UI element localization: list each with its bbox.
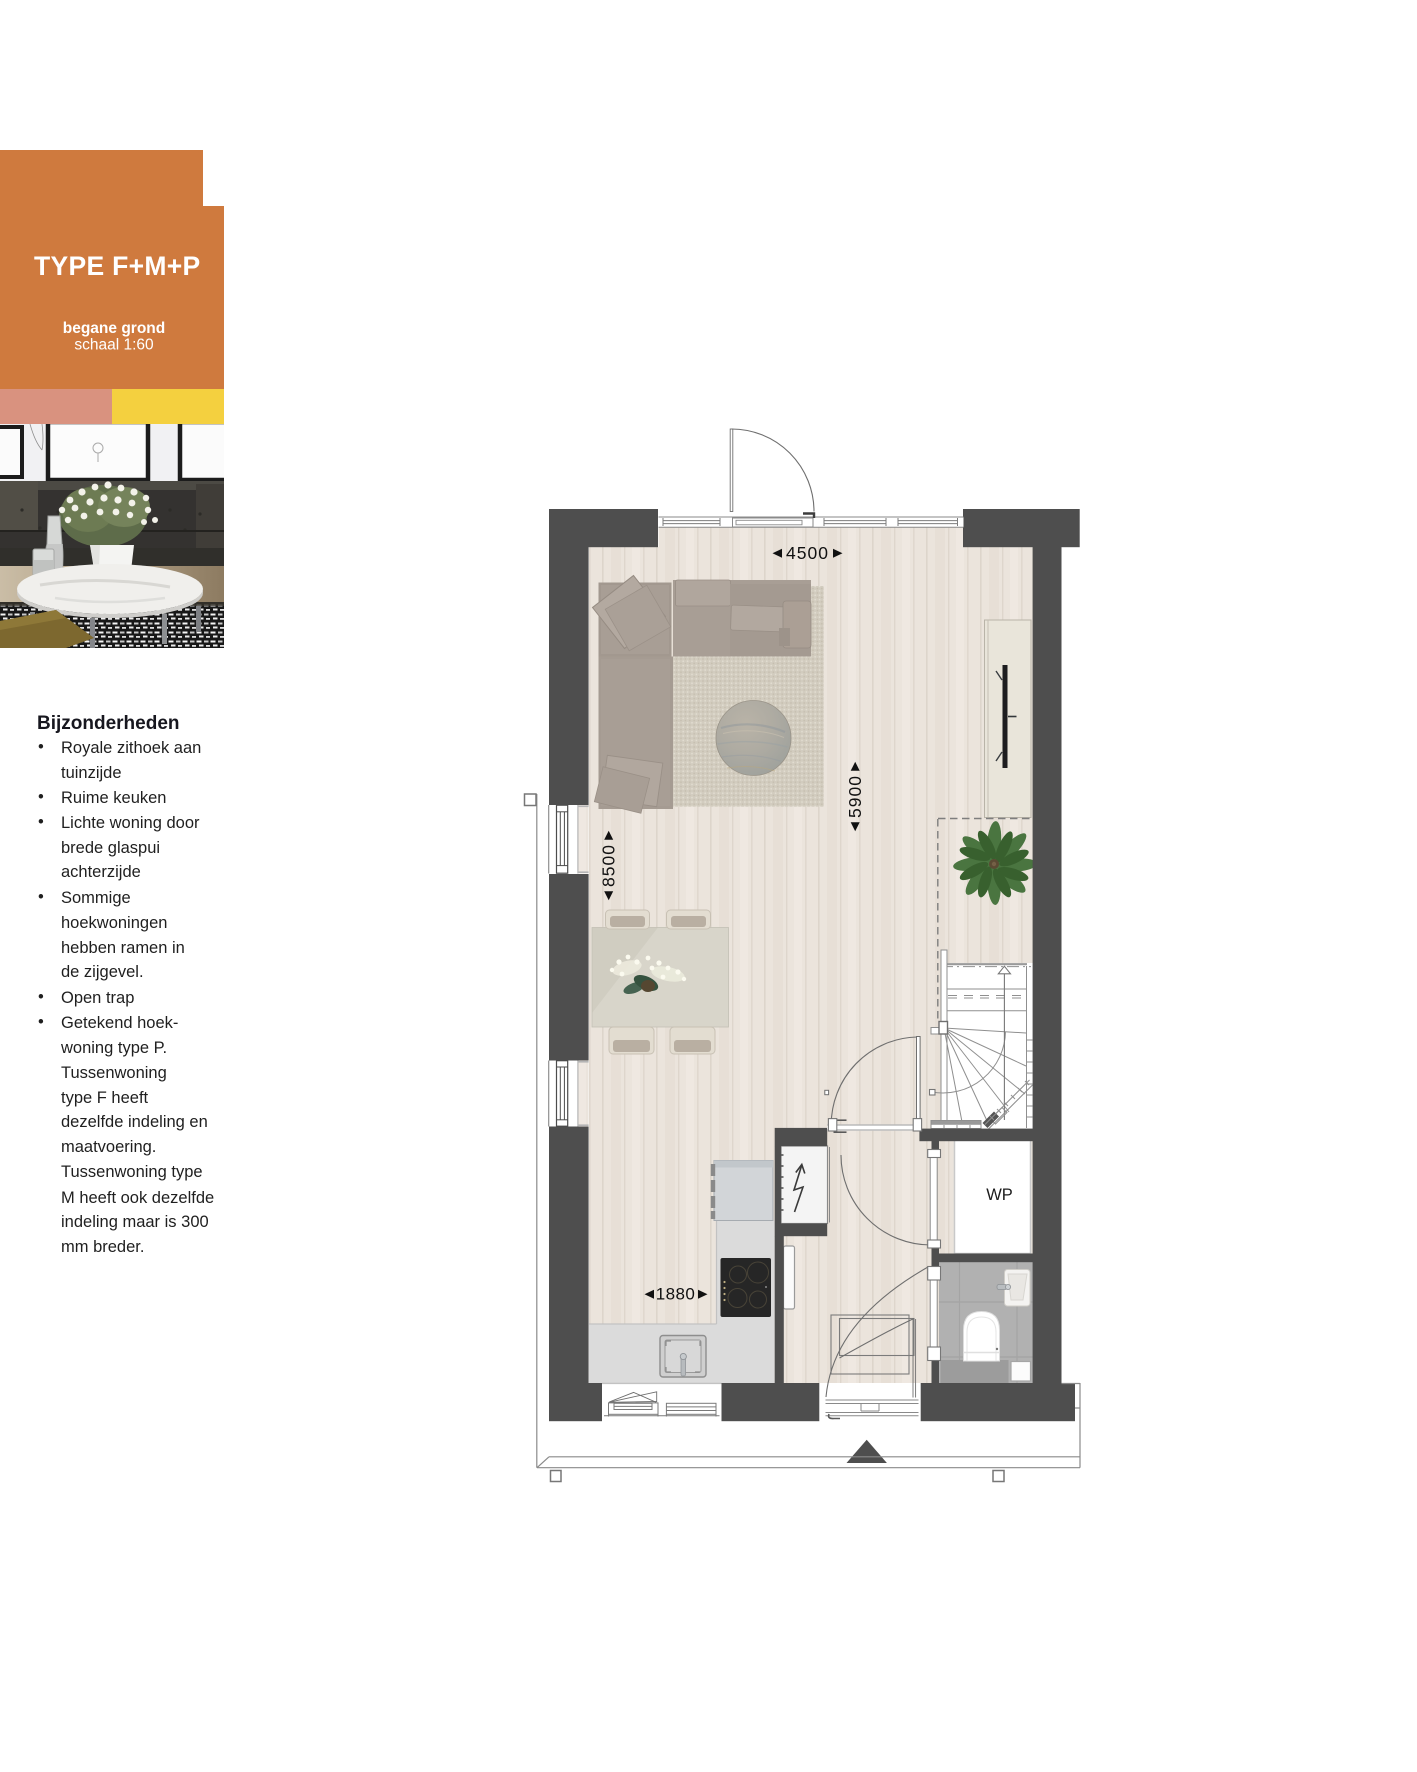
svg-text:•: • (38, 988, 44, 1006)
svg-text:Open trap: Open trap (61, 989, 134, 1007)
svg-text:maatvoering.: maatvoering. (61, 1138, 156, 1156)
svg-text:tuinzijde: tuinzijde (61, 764, 122, 782)
svg-text:Ruime keuken: Ruime keuken (61, 789, 166, 807)
svg-text:TYPE F+M+P: TYPE F+M+P (34, 251, 200, 281)
svg-text:WP: WP (986, 1186, 1013, 1204)
svg-text:8500: 8500 (599, 844, 619, 887)
svg-text:brede glaspui: brede glaspui (61, 839, 160, 857)
svg-text:Lichte woning door: Lichte woning door (61, 814, 200, 832)
svg-text:achterzijde: achterzijde (61, 863, 141, 881)
svg-text:•: • (38, 888, 44, 906)
svg-text:•: • (38, 813, 44, 831)
svg-text:begane grond: begane grond (63, 320, 165, 337)
svg-text:4500: 4500 (786, 543, 829, 563)
svg-text:indeling maar is 300: indeling maar is 300 (61, 1213, 209, 1231)
svg-text:de zijgevel.: de zijgevel. (61, 963, 144, 981)
svg-text:dezelfde indeling en: dezelfde indeling en (61, 1113, 208, 1131)
svg-text:Tussenwoning type: Tussenwoning type (61, 1163, 203, 1181)
svg-text:5900: 5900 (845, 775, 865, 818)
svg-text:•: • (38, 1013, 44, 1031)
svg-text:mm breder.: mm breder. (61, 1238, 144, 1256)
svg-text:•: • (38, 788, 44, 806)
svg-text:M heeft ook dezelfde: M heeft ook dezelfde (61, 1189, 214, 1207)
svg-text:1880: 1880 (656, 1285, 695, 1304)
svg-text:Royale zithoek aan: Royale zithoek aan (61, 739, 201, 757)
svg-text:type F heeft: type F heeft (61, 1089, 149, 1107)
svg-text:Sommige: Sommige (61, 889, 131, 907)
svg-text:hebben ramen in: hebben ramen in (61, 939, 185, 957)
svg-text:Bijzonderheden: Bijzonderheden (37, 713, 180, 734)
svg-text:schaal 1:60: schaal 1:60 (74, 337, 154, 354)
svg-text:Getekend hoek-: Getekend hoek- (61, 1014, 178, 1032)
svg-text:Tussenwoning: Tussenwoning (61, 1064, 167, 1082)
svg-text:hoekwoningen: hoekwoningen (61, 914, 167, 932)
svg-text:woning type P.: woning type P. (60, 1039, 167, 1057)
svg-text:•: • (38, 738, 44, 756)
